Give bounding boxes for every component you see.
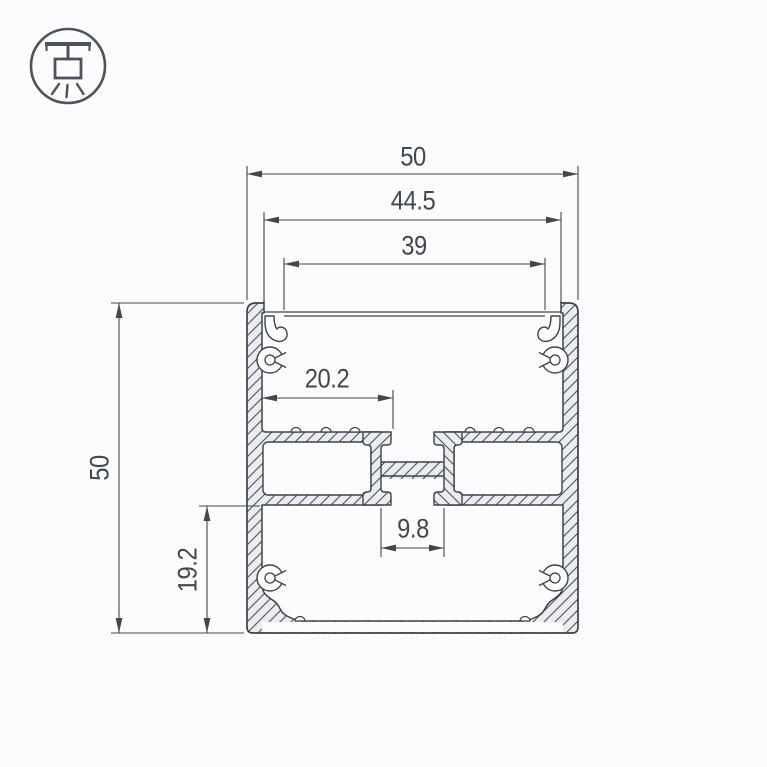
dim-label-top-groove-width: 44.5 (391, 188, 435, 215)
dim-label-center-slot-width: 9.8 (397, 516, 429, 543)
profile-body (247, 301, 578, 633)
dim-label-wall-to-center-slot: 20.2 (305, 366, 349, 393)
profile-cross-section-drawing (0, 0, 767, 767)
center-web (374, 462, 451, 476)
dim-label-top-outer-width: 50 (400, 144, 426, 171)
pendant-light-icon (31, 29, 105, 103)
dim-label-side-outer-height: 50 (87, 455, 114, 481)
side-chamber (263, 442, 371, 495)
light-rays (52, 84, 84, 97)
technical-drawing-page: 50 44.5 39 20.2 9.8 50 19.2 (0, 0, 767, 767)
dim-label-lower-section-height: 19.2 (175, 548, 202, 592)
bottom-plate (262, 622, 563, 632)
dim-label-top-opening-width: 39 (401, 233, 427, 260)
